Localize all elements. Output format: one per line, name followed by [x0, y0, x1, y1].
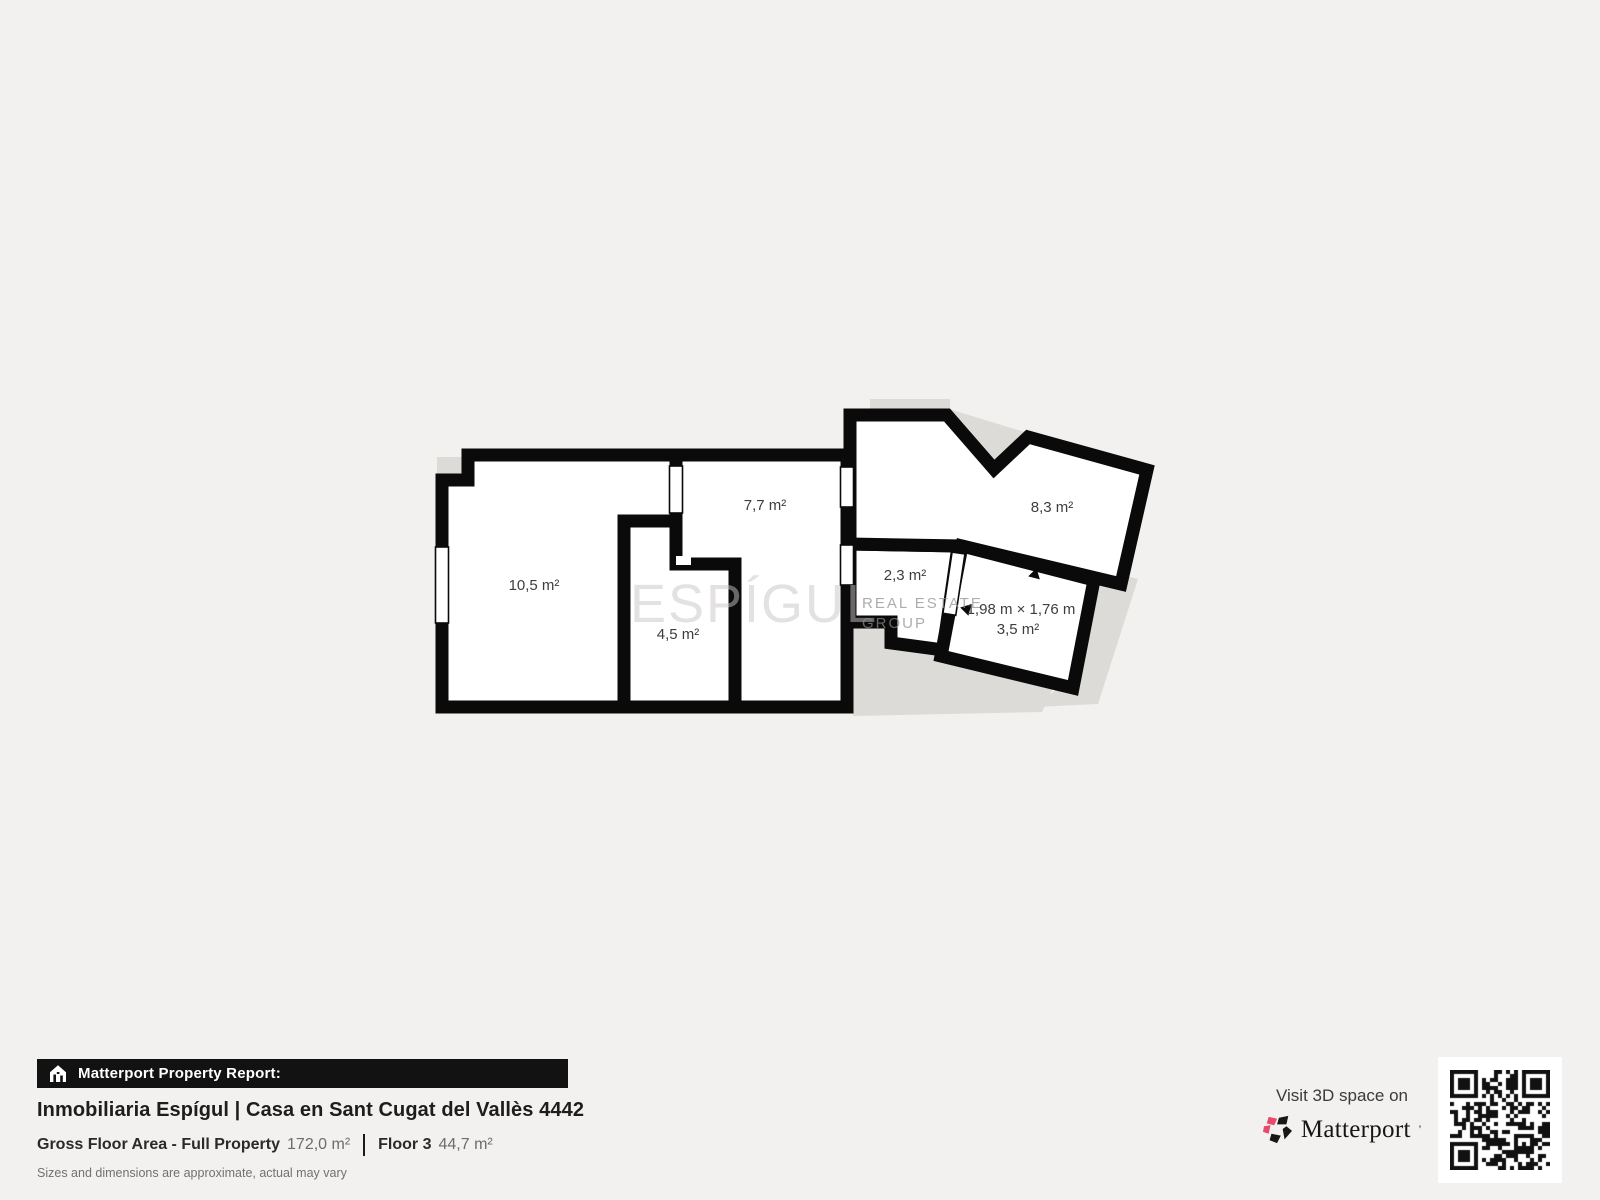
room-label-7-7: 7,7 m² [744, 497, 787, 514]
room-label-2-3: 2,3 m² [884, 567, 927, 584]
visit-3d-cta: Visit 3D space on Matterport’ [1252, 1086, 1432, 1144]
door-opening [676, 556, 691, 565]
watermark-small-line1: REAL ESTATE [862, 595, 983, 612]
watermark-small-line2: GROUP [862, 615, 927, 632]
room-label-4-5: 4,5 m² [657, 626, 700, 643]
qr-code[interactable] [1438, 1057, 1562, 1183]
room-dimension-label: 1,98 m × 1,76 m [967, 601, 1076, 618]
visit-3d-text: Visit 3D space on [1252, 1086, 1432, 1106]
room-label-8-3: 8,3 m² [1031, 499, 1074, 516]
matterport-wordmark: Matterport [1301, 1116, 1411, 1144]
floor-label: Floor 3 [378, 1136, 431, 1154]
disclaimer-text: Sizes and dimensions are approximate, ac… [37, 1166, 737, 1180]
page: { "plan": { "rooms": [ { "label": "10,5 … [0, 0, 1600, 1200]
report-footer: Matterport Property Report: Inmobiliaria… [37, 1059, 737, 1180]
room-label-3-5: 3,5 m² [997, 621, 1040, 638]
trademark-mark: ’ [1419, 1124, 1421, 1136]
room-label-10-5: 10,5 m² [509, 577, 560, 594]
gross-floor-area-label: Gross Floor Area - Full Property [37, 1136, 280, 1154]
matterport-logo-icon [1263, 1115, 1293, 1144]
area-stats: Gross Floor Area - Full Property 172,0 m… [37, 1134, 737, 1156]
watermark-big: ESPÍGUL [630, 574, 878, 634]
floor-value: 44,7 m² [439, 1136, 493, 1154]
report-bar-title: Matterport Property Report: [78, 1065, 281, 1082]
property-title: Inmobiliaria Espígul | Casa en Sant Cuga… [37, 1099, 737, 1122]
property-report-icon [48, 1064, 68, 1083]
matterport-brand[interactable]: Matterport’ [1252, 1115, 1432, 1144]
stats-divider [363, 1134, 365, 1156]
plan-walls [442, 415, 1147, 707]
gross-floor-area-value: 172,0 m² [287, 1136, 350, 1154]
report-bar: Matterport Property Report: [37, 1059, 568, 1088]
floor-plan: ESPÍGUL REAL ESTATE GROUP 10,5 m² 7,7 m²… [0, 0, 1600, 1200]
qr-code-pattern [1450, 1070, 1550, 1170]
